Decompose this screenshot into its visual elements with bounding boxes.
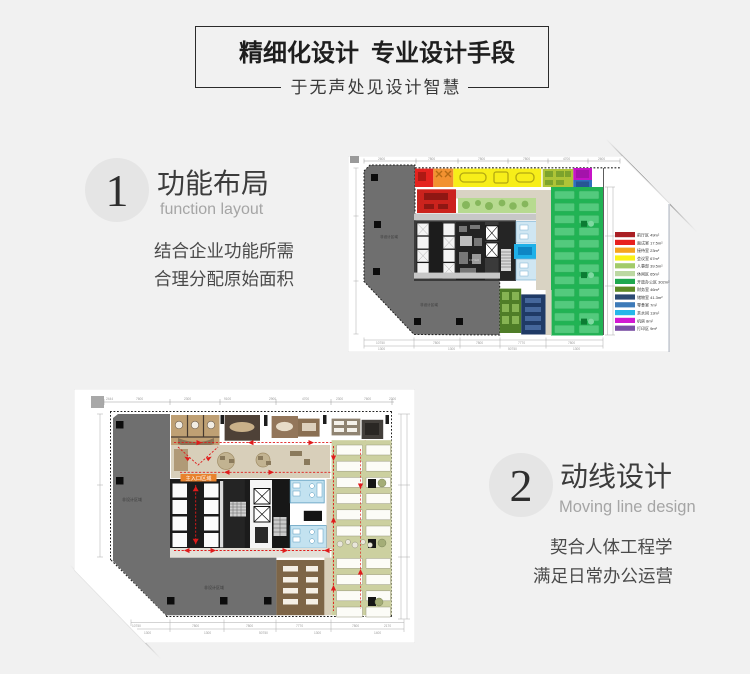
svg-text:机房 8m²: 机房 8m²: [637, 317, 654, 323]
svg-text:非设计区域: 非设计区域: [380, 234, 398, 239]
svg-text:财务室 46m²: 财务室 46m²: [637, 286, 660, 292]
svg-text:1300: 1300: [144, 631, 151, 635]
svg-text:7600: 7600: [136, 397, 143, 401]
svg-text:7600: 7600: [364, 397, 371, 401]
svg-text:50750: 50750: [508, 347, 517, 351]
svg-text:1400: 1400: [374, 631, 381, 635]
svg-text:9100: 9100: [224, 397, 231, 401]
svg-text:1300: 1300: [448, 347, 455, 351]
svg-text:7800: 7800: [428, 157, 435, 161]
svg-text:7800: 7800: [192, 624, 199, 628]
svg-text:7800: 7800: [246, 624, 253, 628]
svg-text:2600: 2600: [378, 157, 385, 161]
svg-text:7800: 7800: [478, 157, 485, 161]
svg-text:1300: 1300: [573, 347, 580, 351]
svg-text:非设计区域: 非设计区域: [122, 496, 142, 502]
svg-text:7800: 7800: [523, 157, 530, 161]
svg-text:会议室 67m²: 会议室 67m²: [637, 255, 660, 261]
svg-text:10750: 10750: [376, 341, 385, 345]
svg-text:2444: 2444: [106, 397, 113, 401]
svg-text:前厅区 49m²: 前厅区 49m²: [637, 232, 660, 238]
svg-text:开放办公区 302m²: 开放办公区 302m²: [637, 278, 670, 284]
svg-text:FOYER: FOYER: [469, 258, 480, 262]
svg-text:茶水间 13m²: 茶水间 13m²: [637, 310, 660, 316]
svg-text:7770: 7770: [296, 624, 303, 628]
svg-text:4700: 4700: [563, 157, 570, 161]
svg-text:储物室 41.3m²: 储物室 41.3m²: [637, 294, 663, 300]
svg-text:1300: 1300: [204, 631, 211, 635]
svg-text:2600: 2600: [598, 157, 605, 161]
svg-text:零食室 7m²: 零食室 7m²: [637, 302, 658, 308]
svg-text:4700: 4700: [302, 397, 309, 401]
svg-text:7770: 7770: [518, 341, 525, 345]
svg-text:10750: 10750: [132, 624, 141, 628]
svg-text:休闲区 65m²: 休闲区 65m²: [637, 271, 660, 277]
svg-text:1300: 1300: [378, 347, 385, 351]
svg-text:50750: 50750: [259, 631, 268, 635]
svg-text:7800: 7800: [568, 341, 575, 345]
svg-text:2300: 2300: [184, 397, 191, 401]
svg-text:7800: 7800: [476, 341, 483, 345]
svg-text:7800: 7800: [433, 341, 440, 345]
svg-text:2900: 2900: [269, 397, 276, 401]
svg-text:接待室 23m²: 接待室 23m²: [637, 247, 660, 253]
svg-text:人事部 39.5m²: 人事部 39.5m²: [637, 263, 663, 269]
svg-text:面试室 17.5m²: 面试室 17.5m²: [637, 239, 663, 245]
svg-text:7800: 7800: [352, 624, 359, 628]
svg-text:打印区 9m²: 打印区 9m²: [637, 325, 658, 331]
svg-text:非设计区域: 非设计区域: [204, 584, 224, 590]
svg-text:主入口区域: 主入口区域: [186, 474, 212, 482]
svg-text:2300: 2300: [389, 397, 396, 401]
svg-text:2170: 2170: [384, 624, 391, 628]
svg-text:1300: 1300: [314, 631, 321, 635]
svg-text:非设计区域: 非设计区域: [420, 302, 438, 307]
svg-text:2300: 2300: [336, 397, 343, 401]
